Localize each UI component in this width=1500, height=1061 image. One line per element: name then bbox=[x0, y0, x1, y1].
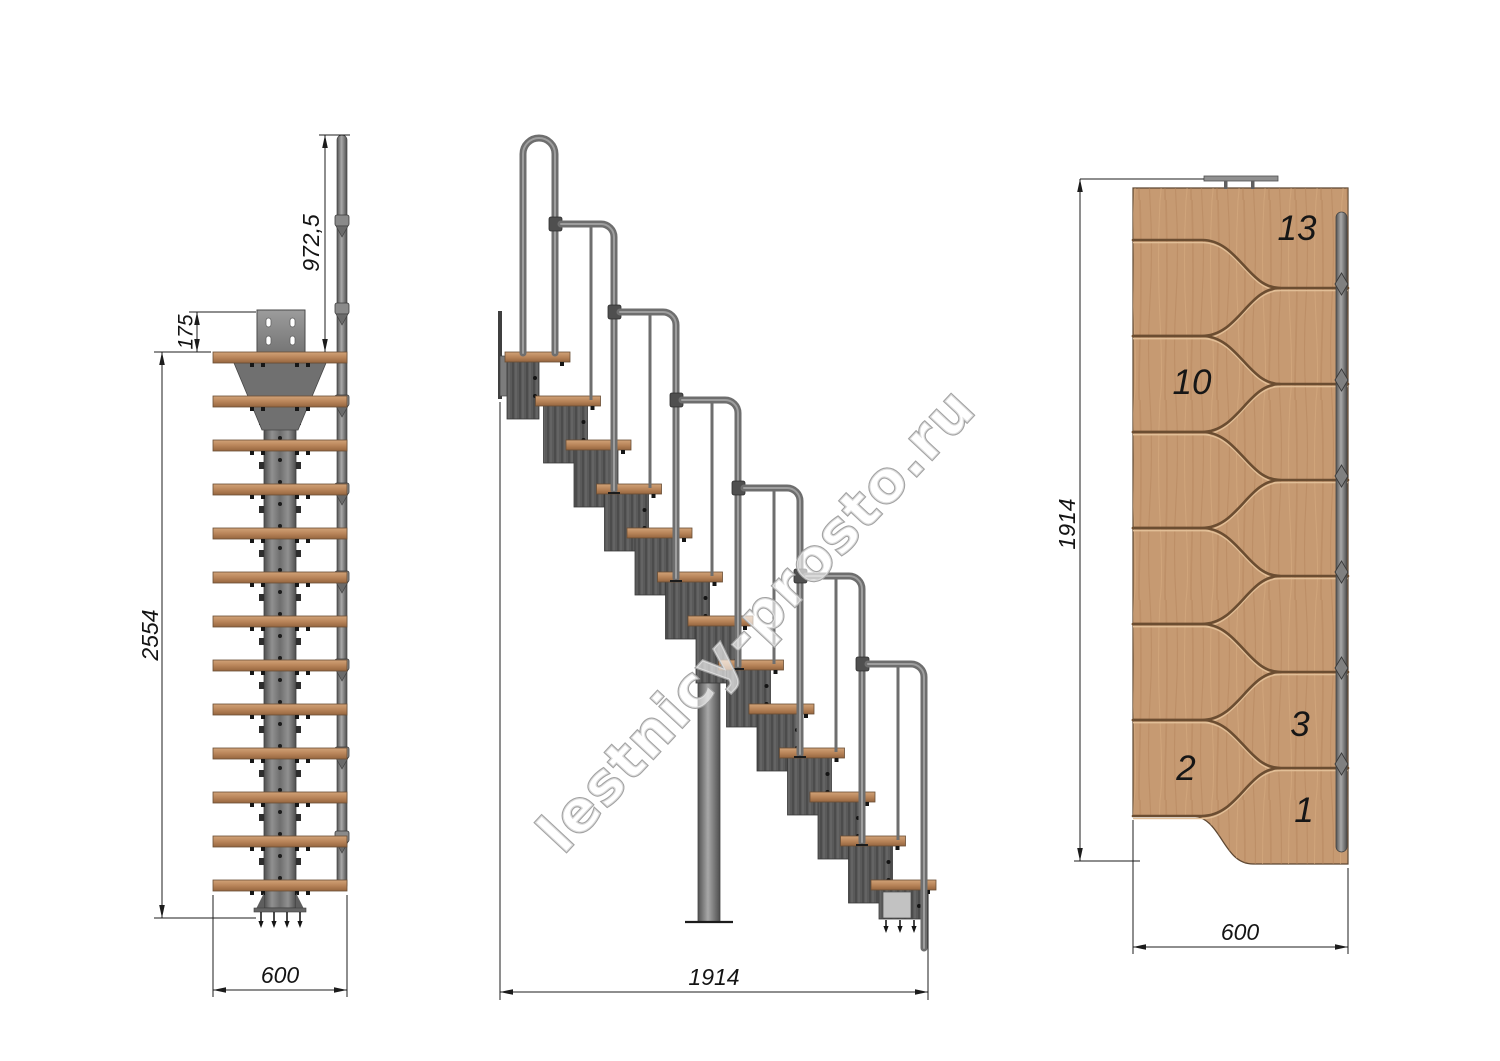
side-tread bbox=[841, 836, 906, 846]
side-length-dim: 1914 bbox=[688, 964, 739, 990]
side-tread bbox=[566, 440, 631, 450]
tread-number-10: 10 bbox=[1173, 363, 1212, 402]
drawing-canvas: 972,5 175 2554 600 1914 1914 600 13 10 3… bbox=[0, 0, 1500, 1061]
tread-number-1: 1 bbox=[1294, 791, 1313, 830]
side-tread bbox=[627, 528, 692, 538]
front-tread bbox=[213, 352, 347, 363]
front-tread bbox=[213, 748, 347, 759]
front-tread bbox=[213, 396, 347, 407]
front-tread bbox=[213, 528, 347, 539]
front-width-dim: 600 bbox=[261, 962, 300, 988]
front-view bbox=[213, 135, 349, 928]
side-tread bbox=[749, 704, 814, 714]
plan-top-bracket bbox=[1204, 176, 1278, 181]
front-handrail-post bbox=[337, 135, 347, 890]
front-rail-height-dim: 972,5 bbox=[298, 214, 324, 272]
front-tread bbox=[213, 484, 347, 495]
front-tread bbox=[213, 660, 347, 671]
front-tread bbox=[213, 616, 347, 627]
tread-number-2: 2 bbox=[1175, 749, 1195, 788]
front-plate-offset-dim: 175 bbox=[175, 314, 198, 349]
front-tread bbox=[213, 880, 347, 891]
staircase-technical-drawing: 972,5 175 2554 600 1914 1914 600 13 10 3… bbox=[0, 0, 1500, 1061]
front-tread bbox=[213, 704, 347, 715]
side-tread bbox=[505, 352, 570, 362]
plan-view bbox=[1133, 176, 1348, 864]
front-column bbox=[264, 352, 296, 908]
handrail-tube bbox=[523, 138, 555, 353]
tread-number-13: 13 bbox=[1278, 209, 1317, 248]
stair-module bbox=[507, 361, 539, 419]
mounting-plate bbox=[257, 310, 305, 353]
front-total-height-dim: 2554 bbox=[137, 609, 163, 661]
front-tread bbox=[213, 572, 347, 583]
front-tread bbox=[213, 792, 347, 803]
front-tread bbox=[213, 440, 347, 451]
front-tread bbox=[213, 836, 347, 847]
side-tread bbox=[597, 484, 662, 494]
tread-number-3: 3 bbox=[1290, 705, 1310, 744]
plan-length-dim: 1914 bbox=[1054, 498, 1080, 549]
plan-width-dim: 600 bbox=[1221, 919, 1260, 945]
front-base-plate bbox=[254, 908, 306, 912]
